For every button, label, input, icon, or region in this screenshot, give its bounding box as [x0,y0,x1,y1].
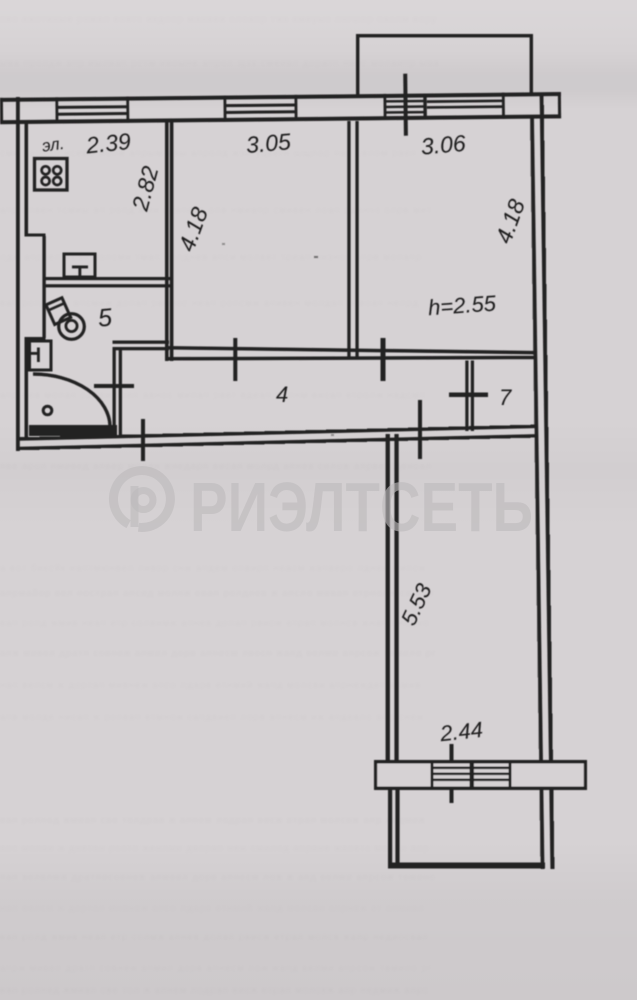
svg-text:4.18: 4.18 [173,204,213,255]
svg-text:РИЭЛТСЕТЬ: РИЭЛТСЕТЬ [190,468,533,546]
svg-text:h=2.55: h=2.55 [427,290,497,320]
svg-text:7: 7 [499,385,512,410]
svg-text:2.44: 2.44 [438,717,484,746]
svg-text:2.39: 2.39 [84,128,132,159]
svg-text:5: 5 [97,304,113,333]
svg-text:4.18: 4.18 [490,196,530,247]
svg-text:3.05: 3.05 [245,128,292,158]
svg-text:5.53: 5.53 [396,579,437,629]
svg-text:эл.: эл. [41,134,66,156]
svg-text:3.06: 3.06 [420,130,467,160]
svg-text:2.82: 2.82 [126,163,163,214]
svg-text:4: 4 [276,382,288,407]
